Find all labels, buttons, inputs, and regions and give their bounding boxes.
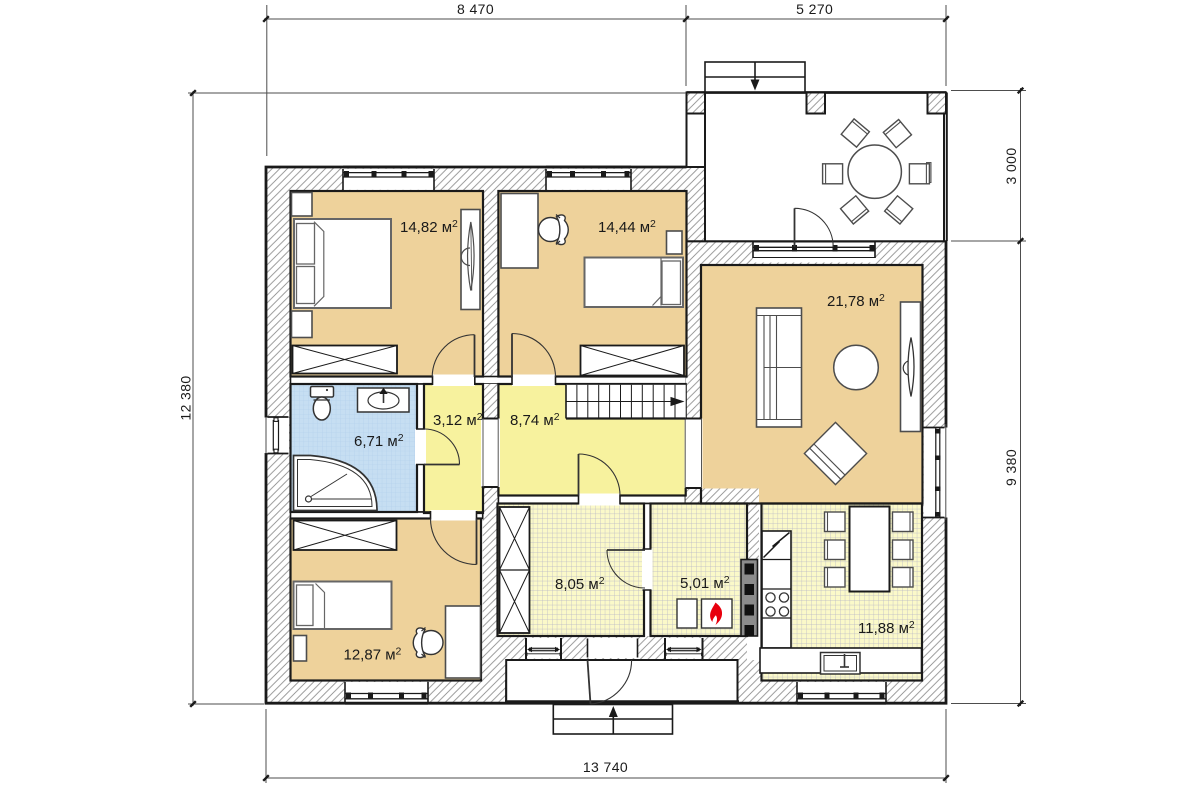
svg-text:9 380: 9 380	[1003, 449, 1019, 486]
svg-text:6,71 м2: 6,71 м2	[354, 432, 404, 450]
svg-text:8,05 м2: 8,05 м2	[555, 575, 605, 593]
svg-text:8,74 м2: 8,74 м2	[510, 411, 560, 429]
svg-text:5 270: 5 270	[796, 1, 833, 17]
svg-text:3,12 м2: 3,12 м2	[433, 411, 483, 429]
svg-text:12 380: 12 380	[178, 375, 194, 420]
svg-text:11,88 м2: 11,88 м2	[858, 619, 915, 637]
svg-text:12,87 м2: 12,87 м2	[344, 646, 402, 664]
svg-text:14,82 м2: 14,82 м2	[400, 218, 458, 236]
svg-text:3 000: 3 000	[1003, 147, 1019, 184]
svg-text:5,01 м2: 5,01 м2	[680, 574, 730, 592]
svg-text:8 470: 8 470	[457, 1, 494, 17]
svg-text:13 740: 13 740	[583, 759, 628, 775]
svg-text:21,78 м2: 21,78 м2	[827, 292, 885, 310]
svg-text:14,44 м2: 14,44 м2	[598, 218, 656, 236]
